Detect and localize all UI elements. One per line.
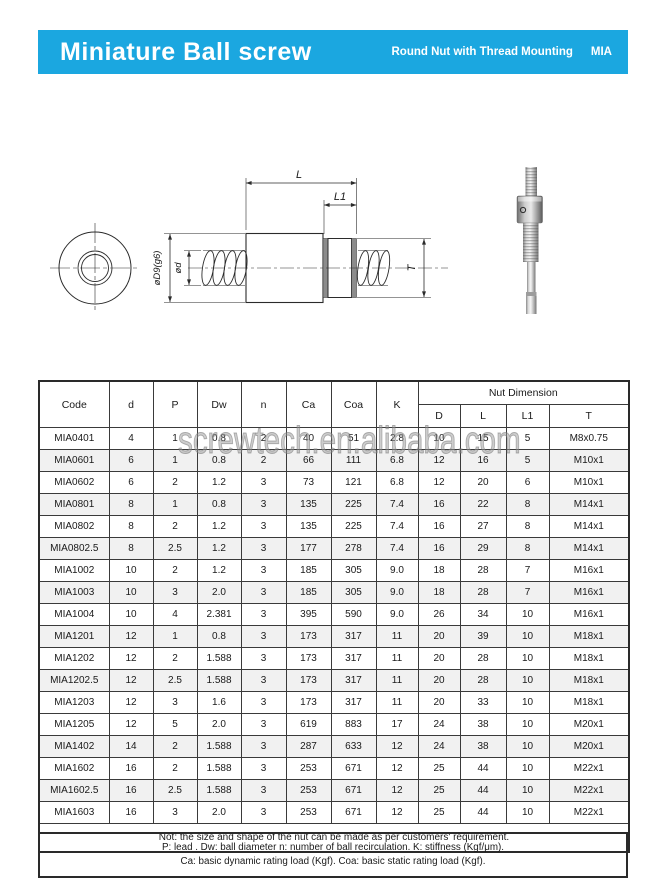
cell-Coa: 671 bbox=[331, 802, 376, 824]
cell-code: MIA0401 bbox=[39, 428, 109, 450]
cell-K: 7.4 bbox=[376, 516, 418, 538]
header-banner: Miniature Ball screw Round Nut with Thre… bbox=[38, 30, 628, 74]
cell-T: M22x1 bbox=[549, 758, 629, 780]
cell-D: 16 bbox=[418, 494, 460, 516]
spec-table-head: Code d P Dw n Ca Coa K Nut Dimension D L… bbox=[39, 381, 629, 428]
spec-row: MIA0802.5 8 2.5 1.2 3 177 278 7.4 16 29 … bbox=[39, 538, 629, 560]
cell-D: 16 bbox=[418, 516, 460, 538]
cell-code: MIA0801 bbox=[39, 494, 109, 516]
cell-T: M16x1 bbox=[549, 560, 629, 582]
cell-Dw: 1.588 bbox=[197, 780, 241, 802]
cell-P: 3 bbox=[153, 582, 197, 604]
spec-table-body: MIA0401 4 1 0.8 2 40 51 2.8 10 15 5 M8x0… bbox=[39, 428, 629, 824]
spec-row: MIA1602 16 2 1.588 3 253 671 12 25 44 10… bbox=[39, 758, 629, 780]
cell-L1: 10 bbox=[506, 604, 549, 626]
cell-n: 3 bbox=[241, 780, 286, 802]
cell-P: 2 bbox=[153, 648, 197, 670]
cell-Dw: 1.588 bbox=[197, 758, 241, 780]
cell-K: 12 bbox=[376, 802, 418, 824]
cell-L: 39 bbox=[460, 626, 506, 648]
cell-Coa: 317 bbox=[331, 648, 376, 670]
cell-L: 28 bbox=[460, 648, 506, 670]
cell-n: 3 bbox=[241, 604, 286, 626]
spec-row: MIA0401 4 1 0.8 2 40 51 2.8 10 15 5 M8x0… bbox=[39, 428, 629, 450]
cell-L: 44 bbox=[460, 758, 506, 780]
cell-K: 11 bbox=[376, 648, 418, 670]
cell-K: 9.0 bbox=[376, 582, 418, 604]
banner-series-code: MIA bbox=[591, 46, 612, 58]
cell-T: M8x0.75 bbox=[549, 428, 629, 450]
dim-label-L1: L1 bbox=[334, 191, 346, 203]
cell-Dw: 0.8 bbox=[197, 450, 241, 472]
cell-n: 3 bbox=[241, 692, 286, 714]
cell-n: 3 bbox=[241, 802, 286, 824]
cell-n: 2 bbox=[241, 450, 286, 472]
cell-Ca: 177 bbox=[286, 538, 331, 560]
cell-n: 3 bbox=[241, 516, 286, 538]
banner-subtitle-group: Round Nut with Thread Mounting MIA bbox=[392, 46, 613, 58]
cell-P: 2 bbox=[153, 516, 197, 538]
cell-d: 10 bbox=[109, 604, 153, 626]
cell-code: MIA1603 bbox=[39, 802, 109, 824]
cell-Dw: 2.381 bbox=[197, 604, 241, 626]
cell-Coa: 883 bbox=[331, 714, 376, 736]
cell-d: 12 bbox=[109, 670, 153, 692]
cell-Coa: 671 bbox=[331, 758, 376, 780]
cell-code: MIA1202 bbox=[39, 648, 109, 670]
col-header-P: P bbox=[153, 381, 197, 428]
cell-Ca: 185 bbox=[286, 560, 331, 582]
cell-T: M18x1 bbox=[549, 692, 629, 714]
cell-L: 44 bbox=[460, 780, 506, 802]
spec-row: MIA1602.5 16 2.5 1.588 3 253 671 12 25 4… bbox=[39, 780, 629, 802]
cell-D: 25 bbox=[418, 758, 460, 780]
cell-P: 2.5 bbox=[153, 538, 197, 560]
col-header-K: K bbox=[376, 381, 418, 428]
cell-K: 11 bbox=[376, 692, 418, 714]
cell-D: 24 bbox=[418, 714, 460, 736]
col-header-d: d bbox=[109, 381, 153, 428]
cell-n: 3 bbox=[241, 648, 286, 670]
cell-n: 3 bbox=[241, 714, 286, 736]
cell-Ca: 173 bbox=[286, 626, 331, 648]
dim-label-D9: øD9(g6) bbox=[152, 251, 163, 286]
cell-code: MIA1203 bbox=[39, 692, 109, 714]
cell-D: 10 bbox=[418, 428, 460, 450]
cell-L1: 8 bbox=[506, 538, 549, 560]
cell-Coa: 121 bbox=[331, 472, 376, 494]
cell-code: MIA1003 bbox=[39, 582, 109, 604]
cell-K: 12 bbox=[376, 780, 418, 802]
cell-Coa: 633 bbox=[331, 736, 376, 758]
cell-K: 17 bbox=[376, 714, 418, 736]
cell-Dw: 1.2 bbox=[197, 516, 241, 538]
cell-code: MIA0802.5 bbox=[39, 538, 109, 560]
cell-Coa: 111 bbox=[331, 450, 376, 472]
cell-Ca: 73 bbox=[286, 472, 331, 494]
spec-row: MIA0602 6 2 1.2 3 73 121 6.8 12 20 6 M10… bbox=[39, 472, 629, 494]
cell-K: 11 bbox=[376, 670, 418, 692]
cell-L1: 10 bbox=[506, 626, 549, 648]
cell-K: 7.4 bbox=[376, 538, 418, 560]
cell-K: 7.4 bbox=[376, 494, 418, 516]
cell-Coa: 51 bbox=[331, 428, 376, 450]
cell-P: 1 bbox=[153, 450, 197, 472]
cell-K: 12 bbox=[376, 758, 418, 780]
cell-L: 27 bbox=[460, 516, 506, 538]
cell-L1: 7 bbox=[506, 582, 549, 604]
cell-D: 20 bbox=[418, 648, 460, 670]
cell-code: MIA0601 bbox=[39, 450, 109, 472]
cell-T: M14x1 bbox=[549, 494, 629, 516]
cell-Ca: 619 bbox=[286, 714, 331, 736]
cell-Dw: 0.8 bbox=[197, 494, 241, 516]
cell-T: M16x1 bbox=[549, 582, 629, 604]
cell-T: M22x1 bbox=[549, 780, 629, 802]
cell-Coa: 671 bbox=[331, 780, 376, 802]
cell-Dw: 1.2 bbox=[197, 560, 241, 582]
spec-row: MIA0802 8 2 1.2 3 135 225 7.4 16 27 8 M1… bbox=[39, 516, 629, 538]
cell-L1: 10 bbox=[506, 692, 549, 714]
cell-n: 3 bbox=[241, 582, 286, 604]
technical-drawing: L L1 øD9(g6) ød T bbox=[0, 150, 666, 368]
cell-K: 6.8 bbox=[376, 450, 418, 472]
cell-Coa: 278 bbox=[331, 538, 376, 560]
cell-n: 3 bbox=[241, 736, 286, 758]
cell-code: MIA0602 bbox=[39, 472, 109, 494]
cell-L1: 10 bbox=[506, 736, 549, 758]
dim-label-d: ød bbox=[173, 262, 184, 274]
cell-Coa: 317 bbox=[331, 692, 376, 714]
cell-P: 4 bbox=[153, 604, 197, 626]
col-header-n: n bbox=[241, 381, 286, 428]
cell-D: 25 bbox=[418, 780, 460, 802]
legend-box: P: lead . Dw: ball diameter n: number of… bbox=[38, 832, 628, 878]
spec-row: MIA1203 12 3 1.6 3 173 317 11 20 33 10 M… bbox=[39, 692, 629, 714]
cell-Dw: 1.588 bbox=[197, 648, 241, 670]
cell-n: 3 bbox=[241, 472, 286, 494]
cell-L: 28 bbox=[460, 582, 506, 604]
cell-code: MIA0802 bbox=[39, 516, 109, 538]
cell-d: 8 bbox=[109, 538, 153, 560]
cell-n: 2 bbox=[241, 428, 286, 450]
cell-L: 28 bbox=[460, 560, 506, 582]
cell-T: M20x1 bbox=[549, 714, 629, 736]
cell-d: 6 bbox=[109, 450, 153, 472]
cell-d: 8 bbox=[109, 494, 153, 516]
col-header-L1: L1 bbox=[506, 405, 549, 428]
side-view: L L1 øD9(g6) ød T bbox=[152, 169, 448, 303]
cell-D: 20 bbox=[418, 670, 460, 692]
cell-T: M18x1 bbox=[549, 670, 629, 692]
cell-n: 3 bbox=[241, 758, 286, 780]
cell-Dw: 0.8 bbox=[197, 428, 241, 450]
cell-D: 20 bbox=[418, 692, 460, 714]
cell-Dw: 1.6 bbox=[197, 692, 241, 714]
cell-D: 25 bbox=[418, 802, 460, 824]
cell-Ca: 135 bbox=[286, 494, 331, 516]
cell-L1: 7 bbox=[506, 560, 549, 582]
cell-code: MIA1202.5 bbox=[39, 670, 109, 692]
cell-n: 3 bbox=[241, 494, 286, 516]
cell-Coa: 225 bbox=[331, 494, 376, 516]
cell-L1: 5 bbox=[506, 450, 549, 472]
col-header-Dw: Dw bbox=[197, 381, 241, 428]
cell-Dw: 1.2 bbox=[197, 538, 241, 560]
cell-Ca: 40 bbox=[286, 428, 331, 450]
cell-T: M18x1 bbox=[549, 648, 629, 670]
cell-L: 28 bbox=[460, 670, 506, 692]
cell-L: 15 bbox=[460, 428, 506, 450]
cell-K: 9.0 bbox=[376, 604, 418, 626]
cell-K: 11 bbox=[376, 626, 418, 648]
cell-Ca: 253 bbox=[286, 802, 331, 824]
cell-D: 24 bbox=[418, 736, 460, 758]
cell-T: M20x1 bbox=[549, 736, 629, 758]
end-view bbox=[50, 223, 140, 313]
cell-T: M10x1 bbox=[549, 450, 629, 472]
cell-D: 18 bbox=[418, 582, 460, 604]
banner-subtitle: Round Nut with Thread Mounting bbox=[392, 46, 573, 58]
cell-Dw: 2.0 bbox=[197, 802, 241, 824]
spec-row: MIA1002 10 2 1.2 3 185 305 9.0 18 28 7 M… bbox=[39, 560, 629, 582]
col-header-D: D bbox=[418, 405, 460, 428]
cell-P: 3 bbox=[153, 802, 197, 824]
cell-P: 1 bbox=[153, 428, 197, 450]
cell-Ca: 287 bbox=[286, 736, 331, 758]
cell-code: MIA1201 bbox=[39, 626, 109, 648]
cell-n: 3 bbox=[241, 538, 286, 560]
spec-row: MIA1202.5 12 2.5 1.588 3 173 317 11 20 2… bbox=[39, 670, 629, 692]
cell-Dw: 2.0 bbox=[197, 714, 241, 736]
cell-d: 10 bbox=[109, 582, 153, 604]
cell-P: 2 bbox=[153, 560, 197, 582]
cell-n: 3 bbox=[241, 626, 286, 648]
cell-Ca: 173 bbox=[286, 670, 331, 692]
cell-Dw: 1.2 bbox=[197, 472, 241, 494]
cell-T: M14x1 bbox=[549, 516, 629, 538]
cell-T: M14x1 bbox=[549, 538, 629, 560]
cell-L1: 8 bbox=[506, 516, 549, 538]
cell-L1: 10 bbox=[506, 758, 549, 780]
cell-D: 26 bbox=[418, 604, 460, 626]
cell-K: 9.0 bbox=[376, 560, 418, 582]
dim-label-T: T bbox=[406, 263, 418, 271]
cell-L1: 10 bbox=[506, 780, 549, 802]
cell-P: 2.5 bbox=[153, 780, 197, 802]
cell-d: 8 bbox=[109, 516, 153, 538]
cell-P: 2 bbox=[153, 472, 197, 494]
cell-L: 20 bbox=[460, 472, 506, 494]
cell-Dw: 0.8 bbox=[197, 626, 241, 648]
cell-Dw: 1.588 bbox=[197, 736, 241, 758]
cell-d: 16 bbox=[109, 802, 153, 824]
cell-code: MIA1602 bbox=[39, 758, 109, 780]
spec-table: Code d P Dw n Ca Coa K Nut Dimension D L… bbox=[38, 380, 630, 853]
spec-row: MIA1603 16 3 2.0 3 253 671 12 25 44 10 M… bbox=[39, 802, 629, 824]
cell-code: MIA1002 bbox=[39, 560, 109, 582]
cell-D: 16 bbox=[418, 538, 460, 560]
cell-D: 12 bbox=[418, 472, 460, 494]
cell-Ca: 66 bbox=[286, 450, 331, 472]
spec-row: MIA1402 14 2 1.588 3 287 633 12 24 38 10… bbox=[39, 736, 629, 758]
cell-n: 3 bbox=[241, 560, 286, 582]
cell-L: 38 bbox=[460, 736, 506, 758]
cell-n: 3 bbox=[241, 670, 286, 692]
cell-d: 12 bbox=[109, 648, 153, 670]
cell-D: 12 bbox=[418, 450, 460, 472]
cell-code: MIA1402 bbox=[39, 736, 109, 758]
legend-line-2: Ca: basic dynamic rating load (Kgf). Coa… bbox=[181, 855, 486, 869]
page-title: Miniature Ball screw bbox=[60, 40, 312, 65]
cell-K: 12 bbox=[376, 736, 418, 758]
cell-d: 16 bbox=[109, 780, 153, 802]
cell-L: 33 bbox=[460, 692, 506, 714]
cell-d: 4 bbox=[109, 428, 153, 450]
col-header-code: Code bbox=[39, 381, 109, 428]
cell-L: 44 bbox=[460, 802, 506, 824]
cell-L: 22 bbox=[460, 494, 506, 516]
spec-row: MIA1004 10 4 2.381 3 395 590 9.0 26 34 1… bbox=[39, 604, 629, 626]
cell-d: 14 bbox=[109, 736, 153, 758]
cell-code: MIA1004 bbox=[39, 604, 109, 626]
cell-Ca: 395 bbox=[286, 604, 331, 626]
spec-row: MIA1205 12 5 2.0 3 619 883 17 24 38 10 M… bbox=[39, 714, 629, 736]
cell-L: 29 bbox=[460, 538, 506, 560]
cell-Coa: 317 bbox=[331, 626, 376, 648]
cell-Coa: 317 bbox=[331, 670, 376, 692]
cell-d: 6 bbox=[109, 472, 153, 494]
cell-Ca: 173 bbox=[286, 692, 331, 714]
cell-L1: 5 bbox=[506, 428, 549, 450]
cell-d: 12 bbox=[109, 626, 153, 648]
spec-row: MIA0601 6 1 0.8 2 66 111 6.8 12 16 5 M10… bbox=[39, 450, 629, 472]
datasheet-page: Miniature Ball screw Round Nut with Thre… bbox=[0, 0, 666, 881]
cell-d: 10 bbox=[109, 560, 153, 582]
col-header-L: L bbox=[460, 405, 506, 428]
cell-K: 6.8 bbox=[376, 472, 418, 494]
cell-K: 2.8 bbox=[376, 428, 418, 450]
cell-Dw: 1.588 bbox=[197, 670, 241, 692]
spec-row: MIA1201 12 1 0.8 3 173 317 11 20 39 10 M… bbox=[39, 626, 629, 648]
cell-P: 1 bbox=[153, 494, 197, 516]
cell-L1: 8 bbox=[506, 494, 549, 516]
cell-L1: 10 bbox=[506, 648, 549, 670]
legend-line-1: P: lead . Dw: ball diameter n: number of… bbox=[162, 841, 504, 855]
cell-Ca: 253 bbox=[286, 780, 331, 802]
cell-P: 2 bbox=[153, 736, 197, 758]
col-header-T: T bbox=[549, 405, 629, 428]
cell-D: 18 bbox=[418, 560, 460, 582]
col-header-Ca: Ca bbox=[286, 381, 331, 428]
cell-P: 5 bbox=[153, 714, 197, 736]
cell-Ca: 135 bbox=[286, 516, 331, 538]
cell-L: 38 bbox=[460, 714, 506, 736]
cell-L1: 6 bbox=[506, 472, 549, 494]
cell-L1: 10 bbox=[506, 714, 549, 736]
cell-P: 2 bbox=[153, 758, 197, 780]
cell-code: MIA1205 bbox=[39, 714, 109, 736]
cell-Ca: 253 bbox=[286, 758, 331, 780]
product-photo bbox=[517, 167, 543, 314]
cell-P: 3 bbox=[153, 692, 197, 714]
cell-P: 2.5 bbox=[153, 670, 197, 692]
cell-D: 20 bbox=[418, 626, 460, 648]
cell-T: M22x1 bbox=[549, 802, 629, 824]
cell-L: 34 bbox=[460, 604, 506, 626]
spec-row: MIA1202 12 2 1.588 3 173 317 11 20 28 10… bbox=[39, 648, 629, 670]
cell-Coa: 305 bbox=[331, 560, 376, 582]
cell-d: 12 bbox=[109, 692, 153, 714]
spec-row: MIA0801 8 1 0.8 3 135 225 7.4 16 22 8 M1… bbox=[39, 494, 629, 516]
cell-L: 16 bbox=[460, 450, 506, 472]
cell-code: MIA1602.5 bbox=[39, 780, 109, 802]
spec-row: MIA1003 10 3 2.0 3 185 305 9.0 18 28 7 M… bbox=[39, 582, 629, 604]
cell-Ca: 185 bbox=[286, 582, 331, 604]
cell-L1: 10 bbox=[506, 802, 549, 824]
col-header-Coa: Coa bbox=[331, 381, 376, 428]
cell-d: 16 bbox=[109, 758, 153, 780]
cell-Coa: 305 bbox=[331, 582, 376, 604]
cell-d: 12 bbox=[109, 714, 153, 736]
cell-Coa: 590 bbox=[331, 604, 376, 626]
cell-T: M10x1 bbox=[549, 472, 629, 494]
cell-T: M16x1 bbox=[549, 604, 629, 626]
cell-L1: 10 bbox=[506, 670, 549, 692]
cell-Dw: 2.0 bbox=[197, 582, 241, 604]
cell-P: 1 bbox=[153, 626, 197, 648]
cell-Ca: 173 bbox=[286, 648, 331, 670]
col-header-nut-dimension: Nut Dimension bbox=[418, 381, 629, 405]
cell-Coa: 225 bbox=[331, 516, 376, 538]
dim-label-L: L bbox=[296, 169, 302, 181]
cell-T: M18x1 bbox=[549, 626, 629, 648]
